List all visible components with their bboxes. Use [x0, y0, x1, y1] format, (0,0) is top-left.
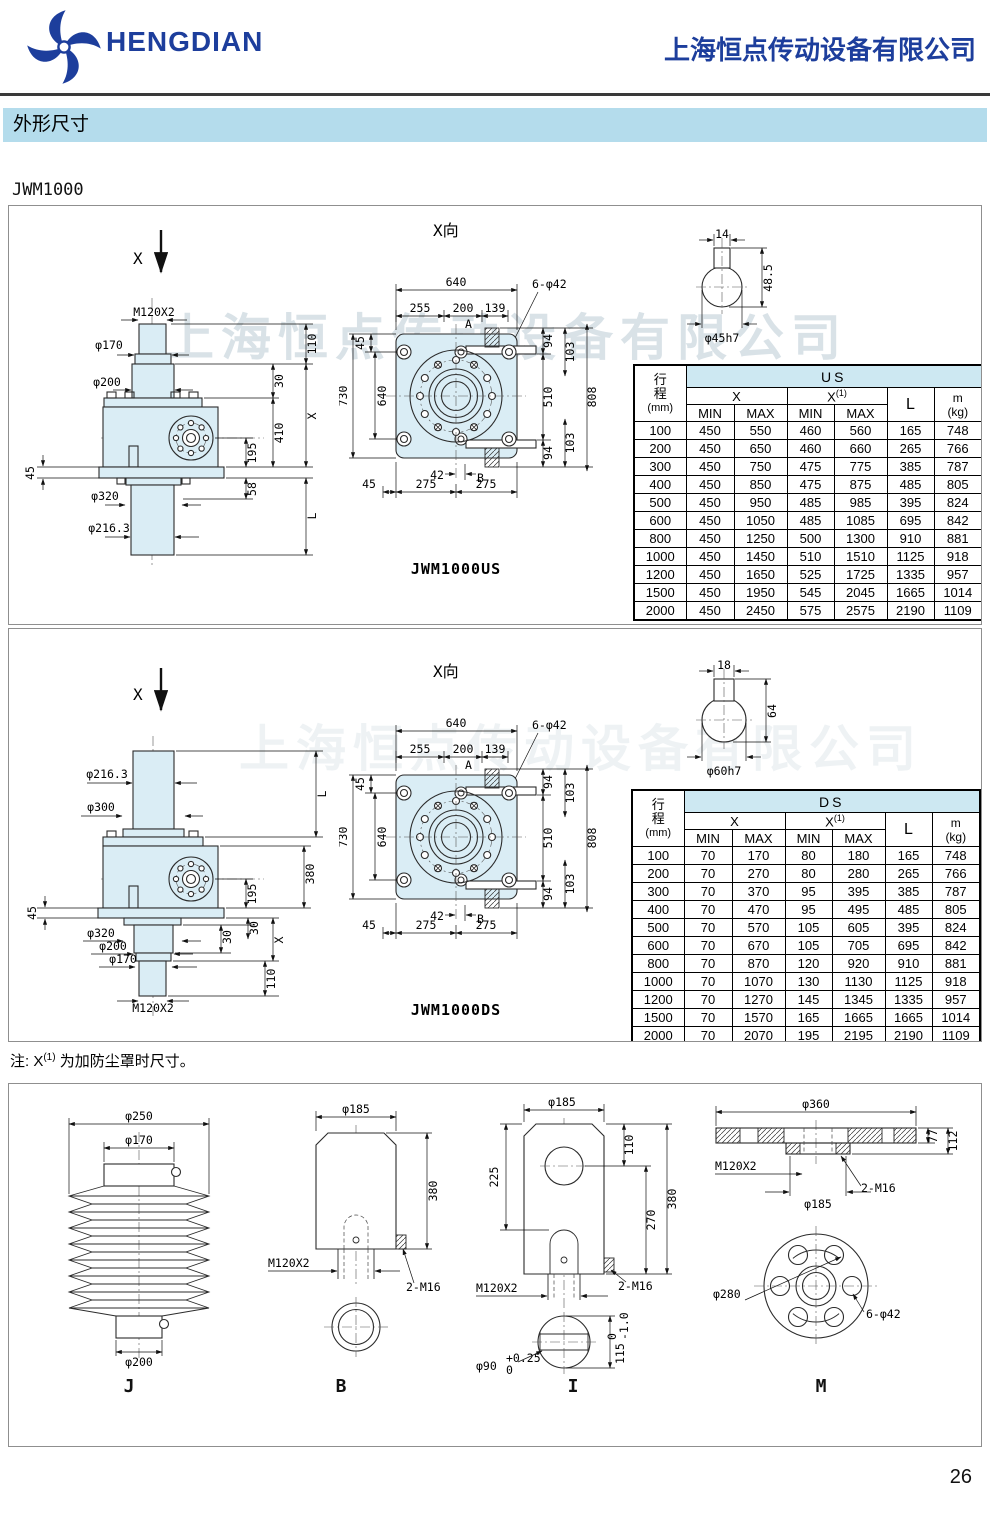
table-cell: 200 [634, 440, 686, 458]
table-cell: 450 [686, 458, 734, 476]
dim-label: φ90+0.250 [476, 1351, 541, 1377]
table-cell: 450 [686, 512, 734, 530]
table-cell: 787 [932, 883, 980, 901]
table-cell: 800 [632, 955, 684, 973]
table-cell: 1125 [887, 548, 934, 566]
table-cell: 385 [885, 883, 932, 901]
dim-label: φ280 [713, 1287, 741, 1301]
table-cell: 1950 [734, 584, 787, 602]
table-row: 400450850475875485805 [634, 476, 982, 494]
table-cell: 70 [684, 1009, 732, 1027]
page-number: 26 [918, 1466, 972, 1489]
table-cell: 1000 [634, 548, 686, 566]
table-header-max: MAX [832, 830, 885, 847]
table-header-min: MIN [686, 405, 734, 422]
dim-label: 2-M16 [618, 1279, 653, 1293]
dim-label: 103 [563, 783, 577, 804]
dim-label: φ320 [87, 926, 115, 940]
table-header-group: US [686, 365, 982, 388]
table-cell: 766 [934, 440, 982, 458]
panel-jwm1000us: 上海恒点传动设备有限公司 X M120X2 φ170 [8, 205, 982, 625]
dim-label: 45 [353, 336, 367, 350]
caption-j: J [99, 1376, 159, 1397]
table-row: 15004501950545204516651014 [634, 584, 982, 602]
end-b-drawing: φ185 M120X2 380 2-M16 [264, 1099, 464, 1374]
table-cell: 1300 [834, 530, 887, 548]
table-row: 2000702070195219521901109 [632, 1027, 980, 1042]
table-header-min: MIN [787, 405, 834, 422]
dim-label: 410 [272, 423, 286, 444]
table-cell: 957 [934, 566, 982, 584]
drawing-caption: JWM1000US [411, 560, 501, 578]
table-header-stroke: 行程(mm) [632, 790, 684, 847]
table-cell: 1250 [734, 530, 787, 548]
drawing-caption: JWM1000DS [411, 1001, 501, 1019]
table-row: 2007027080280265766 [632, 865, 980, 883]
table-cell: 485 [885, 901, 932, 919]
dim-label: 2-M16 [406, 1280, 441, 1294]
dim-label: 730 [339, 827, 350, 848]
table-cell: 450 [686, 494, 734, 512]
table-cell: 560 [834, 422, 887, 440]
table-cell: 270 [732, 865, 785, 883]
dim-label: 45 [362, 918, 376, 932]
dim-label: 200 [453, 301, 474, 315]
dim-label: 640 [446, 275, 467, 289]
company-name: 上海恒点传动设备有限公司 [664, 30, 976, 67]
table-cell: 1270 [732, 991, 785, 1009]
table-cell: 170 [732, 847, 785, 865]
header-divider [0, 93, 990, 96]
table-cell: 400 [634, 476, 686, 494]
dim-label: 110 [305, 334, 319, 355]
table-cell: 165 [885, 847, 932, 865]
dim-label: 45 [25, 906, 39, 920]
table-header-group: DS [684, 790, 980, 813]
table-cell: 2070 [732, 1027, 785, 1042]
dim-label: M120X2 [715, 1159, 757, 1173]
dim-label: 110 [622, 1135, 636, 1156]
table-cell: 450 [686, 440, 734, 458]
table-row: 50070570105605395824 [632, 919, 980, 937]
table-cell: 165 [887, 422, 934, 440]
table-cell: 1070 [732, 973, 785, 991]
table-header-l: L [887, 388, 934, 422]
table-cell: 70 [684, 883, 732, 901]
table-header-x: X [686, 388, 787, 405]
table-cell: 495 [832, 901, 885, 919]
table-cell: 70 [684, 973, 732, 991]
table-cell: 450 [686, 584, 734, 602]
table-cell: 70 [684, 865, 732, 883]
table-cell: 2450 [734, 602, 787, 621]
table-cell: 70 [684, 847, 732, 865]
table-cell: 450 [686, 530, 734, 548]
table-row: 1000450145051015101125918 [634, 548, 982, 566]
table-header-m: m(kg) [934, 388, 982, 422]
table-cell: 570 [732, 919, 785, 937]
dim-label: φ170 [109, 952, 137, 966]
table-cell: 775 [834, 458, 887, 476]
table-cell: 824 [932, 919, 980, 937]
dim-label: 94 [541, 334, 555, 348]
caption-i: I [543, 1376, 603, 1397]
dim-label: 6-φ42 [532, 718, 567, 732]
dim-label: 58 [245, 482, 259, 496]
dim-label: 195 [245, 884, 259, 905]
dim-label: 103 [563, 874, 577, 895]
table-row: 200450650460660265766 [634, 440, 982, 458]
table-cell: 500 [634, 494, 686, 512]
table-cell: 787 [934, 458, 982, 476]
dim-label: 275 [476, 477, 497, 491]
table-cell: 1335 [885, 991, 932, 1009]
dim-label: φ200 [125, 1355, 153, 1369]
table-cell: 1200 [634, 566, 686, 584]
table-cell: 650 [734, 440, 787, 458]
table-row: 3007037095395385787 [632, 883, 980, 901]
dim-label: 94 [541, 887, 555, 901]
table-cell: 70 [684, 937, 732, 955]
table-row: 4007047095495485805 [632, 901, 980, 919]
table-cell: 985 [834, 494, 887, 512]
dim-label: φ185 [804, 1197, 832, 1211]
dim-label: M120X2 [133, 305, 175, 319]
table-cell: 1014 [934, 584, 982, 602]
table-row: 60045010504851085695842 [634, 512, 982, 530]
ds-dimension-table: 行程(mm) DS X X(1) L m(kg) MIN MAX MIN MAX… [631, 789, 981, 1042]
table-cell: 1665 [887, 584, 934, 602]
dim-label: 808 [585, 387, 599, 408]
table-cell: 450 [686, 548, 734, 566]
dim-label: φ250 [125, 1109, 153, 1123]
table-cell: 1345 [832, 991, 885, 1009]
dim-label: L [315, 790, 329, 797]
table-cell: 2000 [634, 602, 686, 621]
table-cell: 748 [934, 422, 982, 440]
table-cell: 575 [787, 602, 834, 621]
table-cell: 2190 [887, 602, 934, 621]
dim-label: 510 [541, 828, 555, 849]
table-cell: 265 [887, 440, 934, 458]
dim-label: L [305, 512, 319, 519]
table-cell: 748 [932, 847, 980, 865]
dim-label: φ320 [91, 489, 119, 503]
table-cell: 475 [787, 458, 834, 476]
dim-label: 225 [487, 1167, 501, 1188]
dim-label: A [465, 317, 472, 331]
dim-label: 6-φ42 [866, 1307, 901, 1321]
dim-label: 640 [375, 827, 389, 848]
dim-label: 14 [715, 228, 729, 241]
table-cell: 395 [887, 494, 934, 512]
table-cell: 95 [785, 883, 832, 901]
dim-label: 1150-1.0 [605, 1312, 631, 1364]
dim-label: 103 [563, 342, 577, 363]
table-cell: 842 [934, 512, 982, 530]
table-cell: 1665 [885, 1009, 932, 1027]
view-label: X向 [433, 662, 459, 681]
hengdian-logo-icon [24, 6, 104, 88]
table-cell: 850 [734, 476, 787, 494]
dim-label: 640 [375, 386, 389, 407]
us-side-view-drawing: X M120X2 φ170 φ200 [21, 216, 341, 608]
dim-label: φ300 [87, 800, 115, 814]
dim-label: φ216.3 [88, 521, 130, 535]
table-cell: 660 [834, 440, 887, 458]
table-cell: 100 [634, 422, 686, 440]
table-cell: 180 [832, 847, 885, 865]
table-row: 80045012505001300910881 [634, 530, 982, 548]
table-cell: 695 [887, 512, 934, 530]
end-j-drawing: φ250 φ170 φ200 [44, 1102, 244, 1372]
ds-front-view-drawing: X向 640 255 200 139 6-φ42 A [339, 657, 619, 1029]
table-cell: 130 [785, 973, 832, 991]
table-cell: 70 [684, 901, 732, 919]
table-cell: 500 [632, 919, 684, 937]
table-header-min: MIN [785, 830, 832, 847]
dim-label: 30 [220, 930, 234, 944]
table-cell: 918 [934, 548, 982, 566]
table-cell: 80 [785, 847, 832, 865]
table-cell: 105 [785, 937, 832, 955]
table-cell: 842 [932, 937, 980, 955]
table-header-x: X [684, 813, 785, 830]
caption-m: M [791, 1376, 851, 1397]
table-cell: 450 [686, 566, 734, 584]
table-cell: 766 [932, 865, 980, 883]
table-header-max: MAX [834, 405, 887, 422]
table-cell: 1085 [834, 512, 887, 530]
dim-label: φ170 [125, 1133, 153, 1147]
dim-label-group: 1150-1.0 [605, 1312, 631, 1364]
table-cell: 1570 [732, 1009, 785, 1027]
table-header-stroke: 行程(mm) [634, 365, 686, 422]
model-label: JWM1000 [12, 180, 84, 200]
dim-label: 139 [485, 742, 506, 756]
table-cell: 165 [785, 1009, 832, 1027]
table-header-m: m(kg) [932, 813, 980, 847]
ds-side-view-drawing: X φ216.3 φ300 45 φ320 [21, 656, 341, 1028]
table-cell: 1335 [887, 566, 934, 584]
table-cell: 910 [885, 955, 932, 973]
table-row: 500450950485985395824 [634, 494, 982, 512]
dim-label: 6-φ42 [532, 277, 567, 291]
table-cell: 1000 [632, 973, 684, 991]
dim-label: 275 [416, 918, 437, 932]
table-cell: 670 [732, 937, 785, 955]
table-row: 100450550460560165748 [634, 422, 982, 440]
panel-end-fittings: φ250 φ170 φ200 J φ185 [8, 1083, 982, 1447]
table-cell: 145 [785, 991, 832, 1009]
dim-label: X [305, 412, 319, 419]
table-cell: 918 [932, 973, 980, 991]
brand-name: HENGDIAN [106, 26, 263, 58]
table-cell: 385 [887, 458, 934, 476]
section-title: 外形尺寸 [3, 108, 89, 142]
table-cell: 1510 [834, 548, 887, 566]
table-cell: 800 [634, 530, 686, 548]
us-shaft-section-drawing: 14 48.5 φ45h7 [659, 228, 794, 356]
table-header-l: L [885, 813, 932, 847]
table-header-x1: X(1) [787, 388, 887, 405]
dim-label: 380 [665, 1189, 679, 1210]
table-cell: 910 [887, 530, 934, 548]
dim-label: 275 [416, 477, 437, 491]
caption-b: B [311, 1376, 371, 1397]
table-cell: 70 [684, 919, 732, 937]
dim-label: M120X2 [476, 1281, 518, 1295]
table-body: 1004505504605601657482004506504606602657… [634, 422, 982, 621]
table-cell: 870 [732, 955, 785, 973]
dim-label: A [465, 758, 472, 772]
table-cell: 300 [632, 883, 684, 901]
table-cell: 2190 [885, 1027, 932, 1042]
dim-label: X [272, 936, 286, 943]
table-cell: 195 [785, 1027, 832, 1042]
table-cell: 1665 [832, 1009, 885, 1027]
table-cell: 525 [787, 566, 834, 584]
table-cell: 395 [885, 919, 932, 937]
table-cell: 460 [787, 422, 834, 440]
dim-label: 30 [272, 374, 286, 388]
dim-label: 45 [353, 777, 367, 791]
table-cell: 705 [832, 937, 885, 955]
dim-label: 139 [485, 301, 506, 315]
dim-label: 808 [585, 828, 599, 849]
table-cell: 510 [787, 548, 834, 566]
table-cell: 1109 [934, 602, 982, 621]
dim-label: 730 [339, 386, 350, 407]
dim-label: 380 [303, 864, 317, 885]
table-cell: 2195 [832, 1027, 885, 1042]
table-cell: 500 [787, 530, 834, 548]
dim-label: 2-M16 [861, 1181, 896, 1195]
table-cell: 1500 [634, 584, 686, 602]
us-front-view-drawing: X向 640 255 200 139 6-φ42 A [339, 216, 619, 588]
dim-label: 18 [717, 659, 731, 672]
dim-label: φ185 [548, 1095, 576, 1109]
dim-label: 640 [446, 716, 467, 730]
table-cell: 881 [932, 955, 980, 973]
table-cell: 80 [785, 865, 832, 883]
table-cell: 1050 [734, 512, 787, 530]
table-cell: 400 [632, 901, 684, 919]
table-cell: 450 [686, 476, 734, 494]
table-cell: 1014 [932, 1009, 980, 1027]
table-row: 100070107013011301125918 [632, 973, 980, 991]
dim-label: φ60h7 [707, 764, 742, 778]
table-row: 80070870120920910881 [632, 955, 980, 973]
dim-label: M120X2 [132, 1001, 174, 1015]
table-cell: 485 [787, 494, 834, 512]
dim-label: φ45h7 [705, 331, 740, 345]
dim-label: φ185 [342, 1102, 370, 1116]
table-cell: 545 [787, 584, 834, 602]
table-row: 20004502450575257521901109 [634, 602, 982, 621]
table-cell: 550 [734, 422, 787, 440]
table-cell: 470 [732, 901, 785, 919]
axis-label: X [133, 249, 143, 268]
table-cell: 750 [734, 458, 787, 476]
table-header-max: MAX [734, 405, 787, 422]
table-cell: 805 [932, 901, 980, 919]
table-cell: 485 [887, 476, 934, 494]
table-cell: 1450 [734, 548, 787, 566]
table-cell: 1130 [832, 973, 885, 991]
table-cell: 875 [834, 476, 887, 494]
dim-label: 110 [264, 969, 278, 990]
table-cell: 600 [634, 512, 686, 530]
table-cell: 881 [934, 530, 982, 548]
table-row: 300450750475775385787 [634, 458, 982, 476]
table-cell: 70 [684, 1027, 732, 1042]
dim-label: 380 [426, 1181, 440, 1202]
table-cell: 105 [785, 919, 832, 937]
datasheet-page: HENGDIAN 上海恒点传动设备有限公司 外形尺寸 JWM1000 上海恒点传… [0, 0, 990, 1513]
dim-label: 200 [453, 742, 474, 756]
dim-label: 270 [644, 1210, 658, 1231]
table-cell: 450 [686, 422, 734, 440]
table-cell: 824 [934, 494, 982, 512]
table-cell: 485 [787, 512, 834, 530]
table-row: 120070127014513451335957 [632, 991, 980, 1009]
dim-label: 275 [476, 918, 497, 932]
table-cell: 2575 [834, 602, 887, 621]
table-cell: 2000 [632, 1027, 684, 1042]
table-cell: 70 [684, 955, 732, 973]
table-row: 1200450165052517251335957 [634, 566, 982, 584]
panel-jwm1000ds: 上海恒点传动设备有限公司 X φ216.3 φ300 [8, 628, 982, 1042]
us-dimension-table: 行程(mm) US X X(1) L m(kg) MIN MAX MIN MAX… [633, 364, 982, 621]
table-cell: 1109 [932, 1027, 980, 1042]
section-title-bar: 外形尺寸 [3, 108, 987, 142]
table-cell: 920 [832, 955, 885, 973]
end-i-drawing: φ185 M120X2 2-M16 225 110 270 380 [474, 1094, 689, 1394]
dim-label: 255 [410, 301, 431, 315]
end-m-drawing: φ360 77 112 M120X2 2-M16 φ185 φ [701, 1094, 961, 1389]
dim-label: φ216.3 [86, 767, 128, 781]
table-cell: 460 [787, 440, 834, 458]
table-cell: 2045 [834, 584, 887, 602]
table-row: 1007017080180165748 [632, 847, 980, 865]
table-cell: 1200 [632, 991, 684, 1009]
table-cell: 1500 [632, 1009, 684, 1027]
table-cell: 475 [787, 476, 834, 494]
table-body: 1007017080180165748200702708028026576630… [632, 847, 980, 1042]
table-cell: 1725 [834, 566, 887, 584]
dim-label: 45 [362, 477, 376, 491]
table-cell: 300 [634, 458, 686, 476]
table-cell: 695 [885, 937, 932, 955]
dim-label: φ360 [802, 1097, 830, 1111]
table-cell: 280 [832, 865, 885, 883]
footnote: 注: X(1) 为加防尘罩时尺寸。 [10, 1050, 195, 1071]
table-cell: 1125 [885, 973, 932, 991]
dim-label: 94 [541, 775, 555, 789]
dim-label: 94 [541, 446, 555, 460]
dim-label: φ200 [93, 375, 121, 389]
dim-label: 112 [946, 1131, 960, 1152]
dim-label: 45 [23, 466, 37, 480]
table-cell: 200 [632, 865, 684, 883]
dim-label: 510 [541, 387, 555, 408]
ds-shaft-section-drawing: 18 64 φ60h7 [661, 659, 796, 789]
table-header-max: MAX [732, 830, 785, 847]
dim-label: 195 [245, 443, 259, 464]
table-cell: 70 [684, 991, 732, 1009]
dim-label: 77 [926, 1129, 940, 1143]
